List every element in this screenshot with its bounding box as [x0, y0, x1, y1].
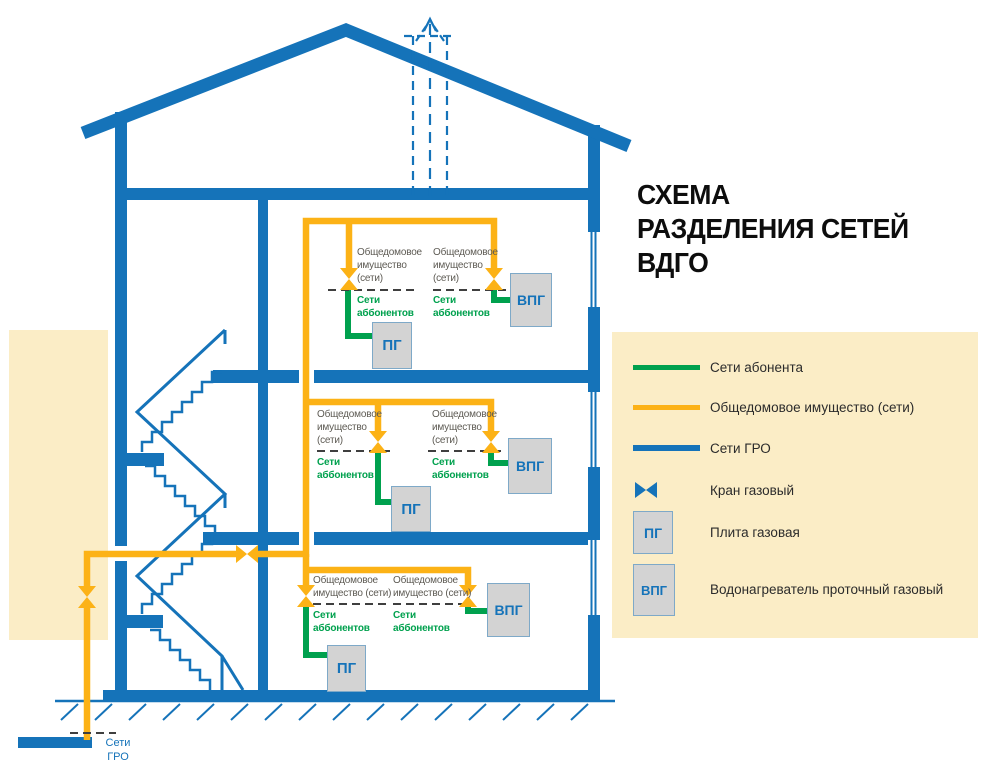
- left-wall: [115, 112, 127, 702]
- stair-steps-flight4: [142, 372, 222, 452]
- window-floor2: [588, 392, 600, 467]
- network-labels-floor3-left: Общедомовое имущество (сети) Сети аббоне…: [357, 246, 422, 320]
- stair-steps-flight1: [150, 630, 210, 690]
- gas-valve-icon: [340, 268, 358, 290]
- legend-stove-symbol: ПГ: [644, 525, 662, 541]
- windows: [588, 232, 600, 615]
- window-floor1: [588, 540, 600, 615]
- network-boundary-dashes: [70, 290, 506, 733]
- gas-valve-icon: [78, 586, 96, 608]
- gro-pipe: [18, 737, 92, 748]
- legend-label-heater: Водонагреватель проточный газовый: [710, 581, 943, 598]
- ground-hatching: [55, 701, 615, 720]
- building-section-drawing: [0, 0, 1000, 780]
- legend-label-stove: Плита газовая: [710, 524, 800, 541]
- floor-slab-3-2: [213, 370, 600, 383]
- legend-heater-box: ВПГ: [633, 564, 675, 616]
- legend-stove-box: ПГ: [633, 511, 673, 554]
- interior-wall: [258, 200, 268, 692]
- gas-valve-icon: [236, 545, 258, 563]
- staircase: [127, 330, 243, 690]
- attic-slab: [115, 188, 600, 200]
- stove-box-floor2: ПГ: [391, 486, 431, 532]
- stove-box-floor1: ПГ: [327, 645, 366, 692]
- legend-label-common: Общедомовое имущество (сети): [710, 399, 914, 416]
- legend-label-subscriber: Сети абонента: [710, 359, 803, 376]
- chimney-flue: [404, 19, 456, 196]
- stair-mid-landing-upper: [127, 453, 164, 466]
- heater-box-floor2: ВПГ: [508, 438, 552, 494]
- network-labels-floor2-right: Общедомовое имущество (сети) Сети аббоне…: [432, 408, 497, 482]
- title-line-2: РАЗДЕЛЕНИЯ СЕТЕЙ: [637, 212, 909, 246]
- page-title: СХЕМА РАЗДЕЛЕНИЯ СЕТЕЙ ВДГО: [637, 178, 909, 280]
- legend-label-gro: Сети ГРО: [710, 440, 771, 457]
- network-labels-floor1-right: Общедомовое имущество (сети) Сети аббоне…: [393, 574, 471, 635]
- stair-railing: [137, 330, 225, 690]
- stove-box-floor3: ПГ: [372, 322, 412, 369]
- network-labels-floor3-right: Общедомовое имущество (сети) Сети аббоне…: [433, 246, 498, 320]
- legend-heater-symbol: ВПГ: [641, 583, 667, 598]
- heater-box-floor1: ВПГ: [487, 583, 530, 637]
- network-labels-floor1-left: Общедомовое имущество (сети) Сети аббоне…: [313, 574, 391, 635]
- stair-steps-flight2: [142, 534, 222, 614]
- window-floor3: [588, 232, 600, 307]
- diagram-canvas: Сети абонента Общедомовое имущество (сет…: [0, 0, 1000, 780]
- title-line-3: ВДГО: [637, 246, 909, 280]
- stair-mid-landing-lower: [127, 615, 163, 628]
- legend-label-valve: Кран газовый: [710, 482, 794, 499]
- roof: [83, 30, 629, 146]
- heater-box-floor3: ВПГ: [510, 273, 552, 327]
- network-labels-floor2-left: Общедомовое имущество (сети) Сети аббоне…: [317, 408, 382, 482]
- title-line-1: СХЕМА: [637, 178, 909, 212]
- gro-source-label: Сети ГРО: [99, 736, 137, 764]
